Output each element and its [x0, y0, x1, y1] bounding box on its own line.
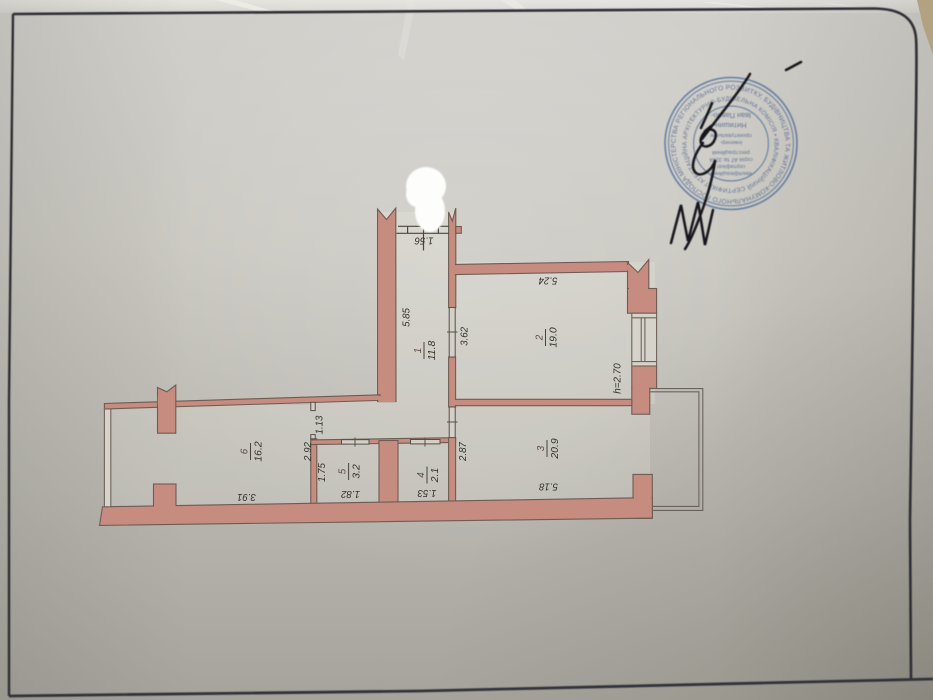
svg-text:1.56: 1.56: [414, 235, 433, 246]
svg-text:сертифікат: сертифікат: [716, 163, 745, 169]
svg-text:реєстраційний: реєстраційний: [712, 149, 750, 156]
svg-text:2.87: 2.87: [458, 441, 469, 461]
svg-text:5.24: 5.24: [538, 275, 557, 286]
svg-text:1.82: 1.82: [340, 488, 359, 499]
svg-text:4: 4: [416, 472, 427, 478]
svg-text:1.75: 1.75: [317, 462, 328, 481]
svg-text:3: 3: [536, 445, 547, 451]
svg-text:h=2.70: h=2.70: [613, 363, 624, 394]
svg-text:5.85: 5.85: [402, 307, 413, 326]
svg-text:3.2: 3.2: [352, 464, 363, 479]
svg-text:Нитишин: Нитишин: [715, 121, 746, 130]
svg-text:11.8: 11.8: [427, 341, 438, 361]
svg-text:1.13: 1.13: [314, 415, 325, 434]
svg-text:1: 1: [413, 348, 424, 353]
svg-text:1.53: 1.53: [417, 487, 436, 498]
svg-text:2.92: 2.92: [303, 441, 314, 461]
svg-text:3.62: 3.62: [459, 326, 470, 345]
svg-text:5: 5: [338, 468, 349, 474]
svg-text:2.1: 2.1: [430, 468, 441, 483]
svg-text:16.2: 16.2: [254, 441, 265, 461]
svg-text:5.18: 5.18: [538, 481, 557, 492]
svg-text:інженер-: інженер-: [720, 139, 742, 145]
svg-text:кваліфікаційний: кваліфікаційний: [710, 170, 751, 177]
svg-text:3.91: 3.91: [237, 491, 256, 502]
svg-text:6: 6: [240, 448, 251, 454]
svg-text:2: 2: [535, 334, 546, 341]
svg-text:20.9: 20.9: [550, 438, 561, 459]
svg-text:19.0: 19.0: [549, 327, 560, 347]
